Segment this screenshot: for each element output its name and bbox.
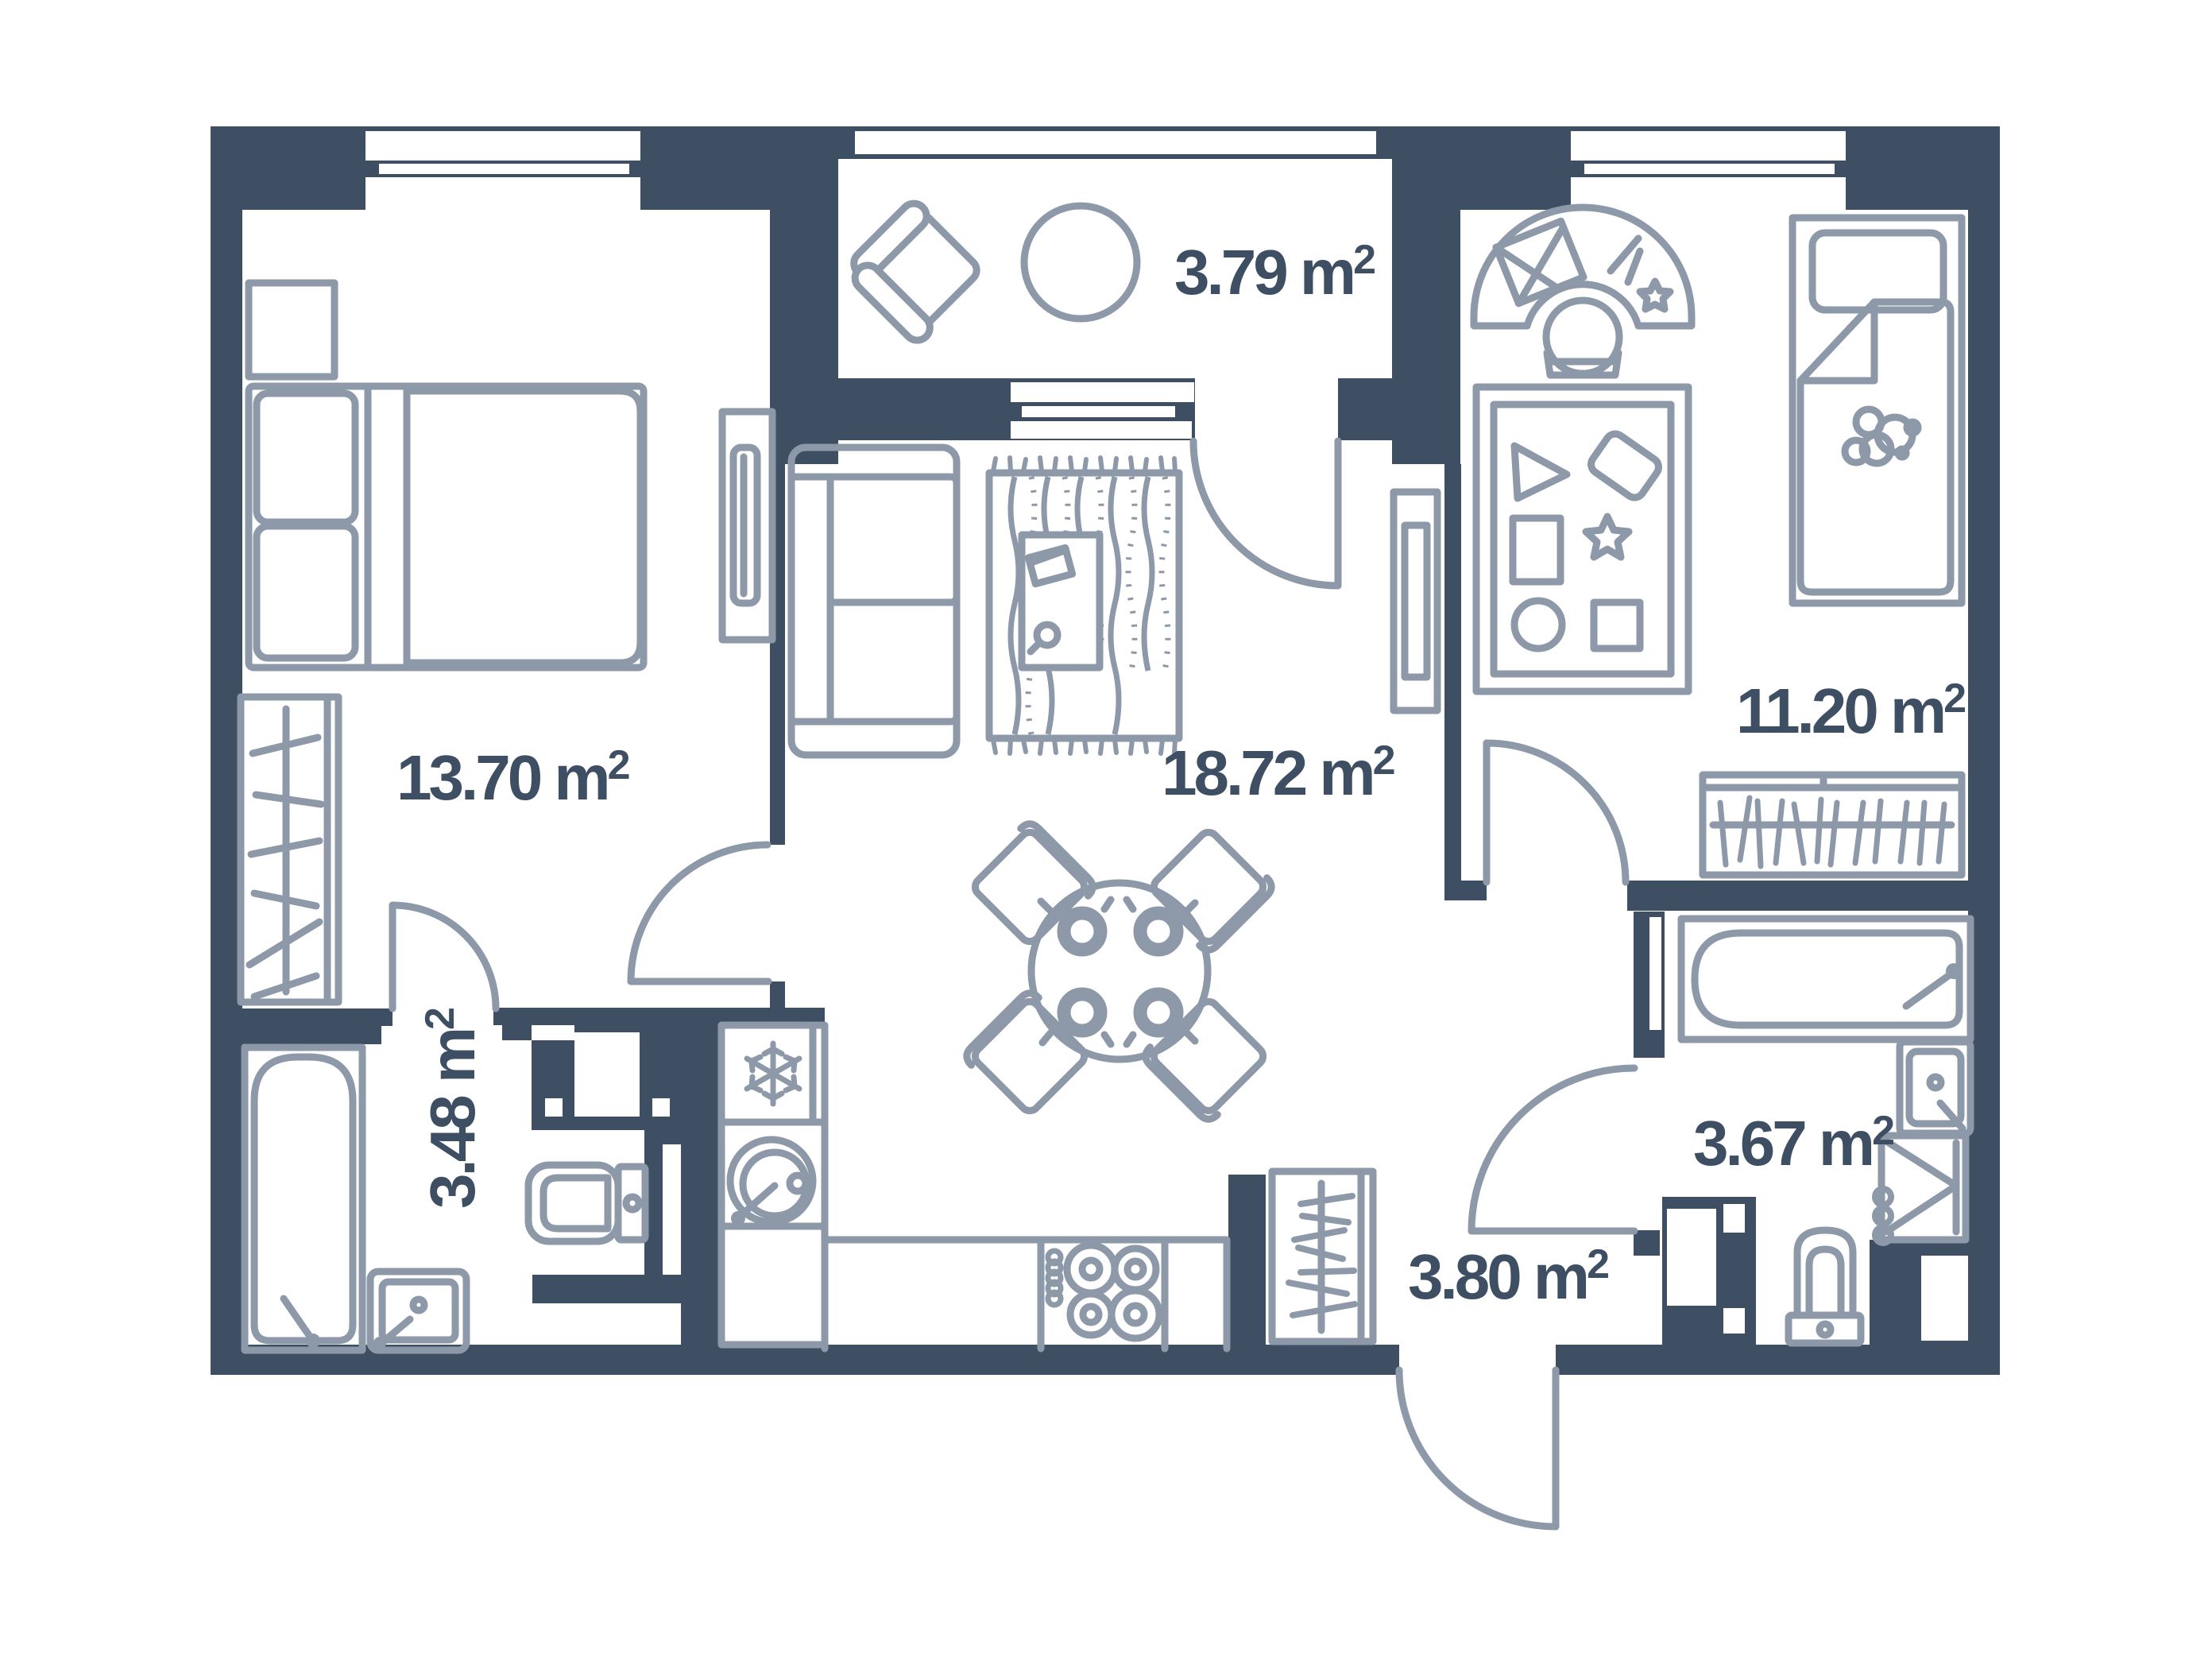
- svg-text:3.79 m2: 3.79 m2: [1174, 237, 1376, 308]
- svg-text:11.20 m2: 11.20 m2: [1736, 676, 1966, 746]
- svg-text:3.67 m2: 3.67 m2: [1693, 1108, 1895, 1179]
- svg-text:13.70 m2: 13.70 m2: [396, 742, 630, 813]
- svg-text:3.80 m2: 3.80 m2: [1408, 1241, 1610, 1312]
- svg-text:3.48 m2: 3.48 m2: [417, 1007, 488, 1209]
- svg-text:18.72 m2: 18.72 m2: [1162, 737, 1395, 808]
